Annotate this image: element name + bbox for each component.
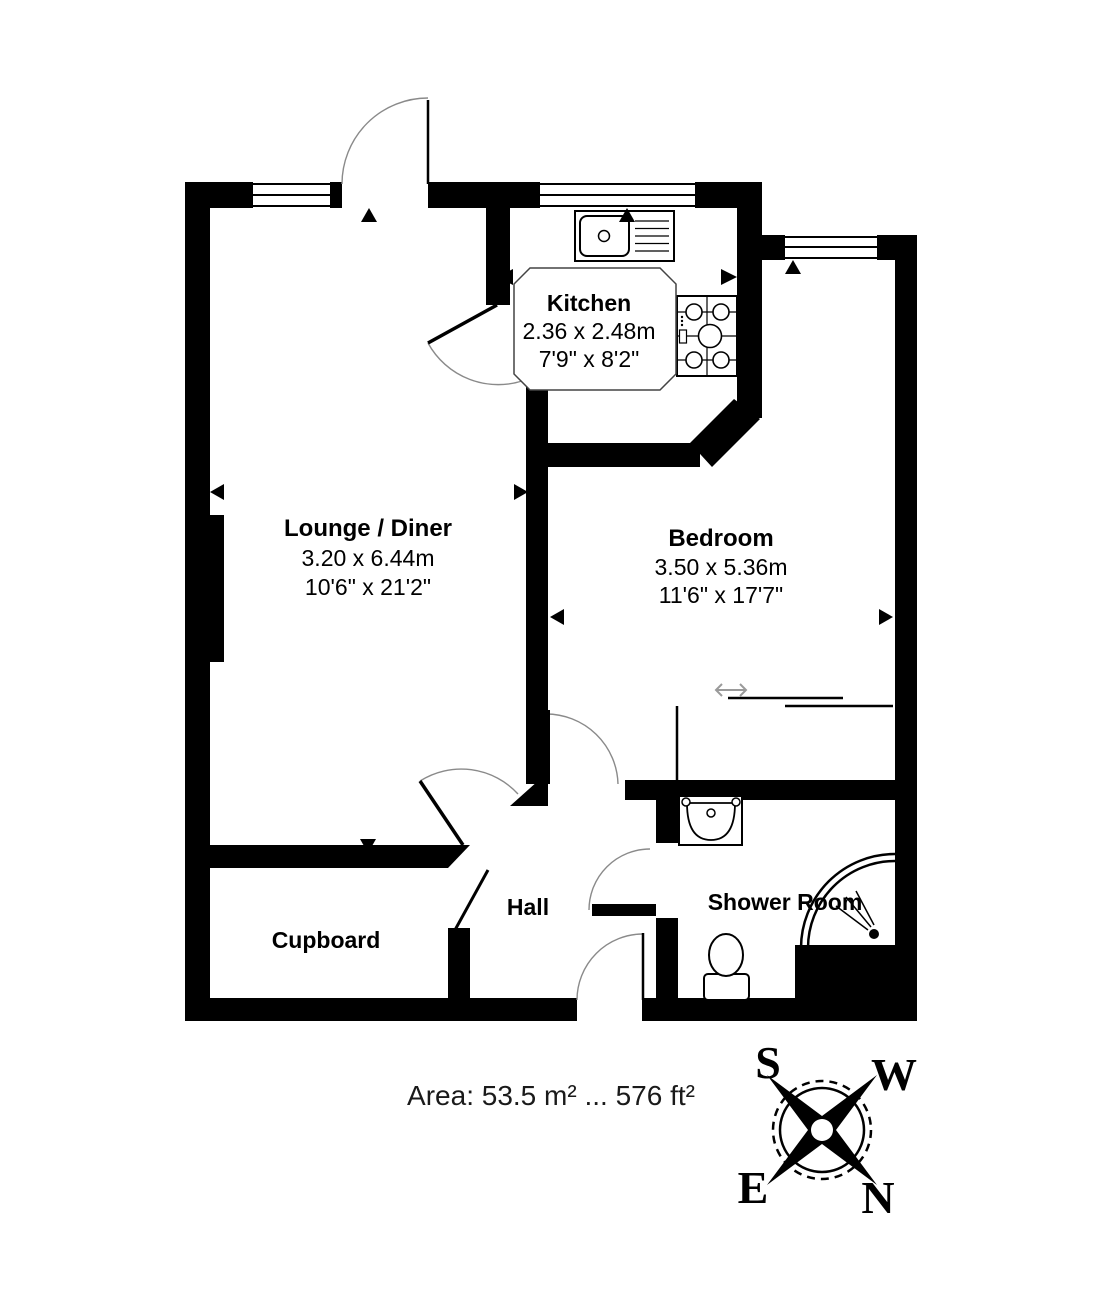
left-wall — [185, 182, 210, 1021]
bedroom-shower-wall — [625, 780, 917, 800]
bedroom-window — [785, 235, 877, 260]
lounge-name: Lounge / Diner — [284, 515, 452, 542]
wash-basin — [679, 796, 742, 845]
kitchen-imperial: 7'9" x 8'2" — [539, 346, 640, 372]
shower-corner-wall — [795, 945, 917, 1021]
compass-s: S — [755, 1037, 781, 1088]
kitchen-right-wall — [737, 182, 762, 418]
cupboard-name: Cupboard — [272, 927, 381, 953]
bottom-wall-left — [185, 998, 577, 1021]
floor-plan-page: Kitchen 2.36 x 2.48m 7'9" x 8'2" Lounge … — [0, 0, 1102, 1304]
hob — [677, 296, 737, 376]
hall-name: Hall — [507, 894, 549, 920]
hall-shower-pillar — [656, 918, 678, 1000]
right-wall — [895, 235, 917, 1021]
chimney-breast — [210, 515, 224, 662]
lounge-bottom-wall — [190, 845, 448, 868]
basin-pillar — [656, 800, 678, 843]
floor-plan: Kitchen 2.36 x 2.48m 7'9" x 8'2" Lounge … — [0, 0, 1102, 1304]
compass-n: N — [861, 1172, 894, 1223]
area-text: Area: 53.5 m² ... 576 ft² — [407, 1080, 695, 1111]
lounge-metric: 3.20 x 6.44m — [302, 545, 435, 571]
bedroom-name: Bedroom — [668, 525, 773, 552]
kitchen-bottom-wall — [526, 443, 700, 467]
compass-w: W — [871, 1049, 917, 1100]
bottom-wall-right — [642, 998, 797, 1021]
lounge-kitchen-divider — [486, 182, 510, 305]
shower-head-dot — [869, 929, 879, 939]
bedroom-imperial: 11'6" x 17'7" — [659, 582, 783, 608]
kitchen-window — [540, 182, 695, 208]
bedroom-metric: 3.50 x 5.36m — [655, 554, 788, 580]
compass-e: E — [738, 1162, 769, 1213]
lounge-window — [253, 182, 330, 208]
cupboard-divider — [448, 928, 470, 1000]
lounge-imperial: 10'6" x 21'2" — [305, 574, 431, 600]
compass-hub — [811, 1119, 833, 1141]
shower-room-name: Shower Room — [708, 889, 863, 915]
kitchen-metric: 2.36 x 2.48m — [523, 318, 656, 344]
hob-dots — [681, 316, 683, 326]
kitchen-name: Kitchen — [547, 290, 631, 316]
